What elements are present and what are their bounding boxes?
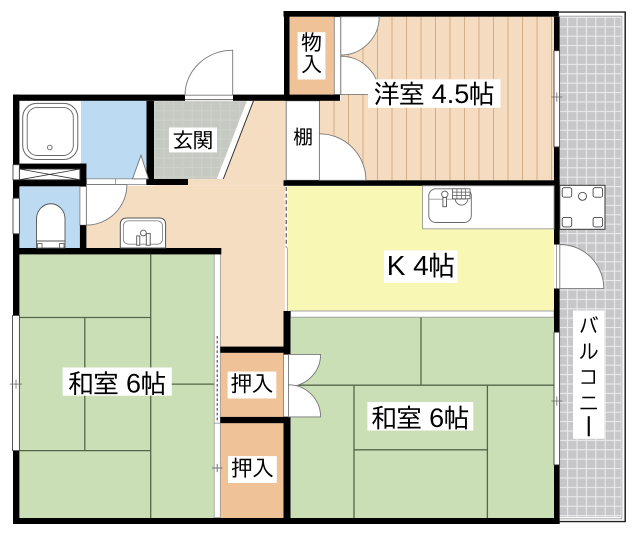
- svg-text:6: 6: [422, 403, 445, 433]
- svg-text:4.5: 4.5: [424, 79, 469, 109]
- svg-text:6: 6: [119, 369, 142, 399]
- svg-text:K 4: K 4: [387, 250, 429, 281]
